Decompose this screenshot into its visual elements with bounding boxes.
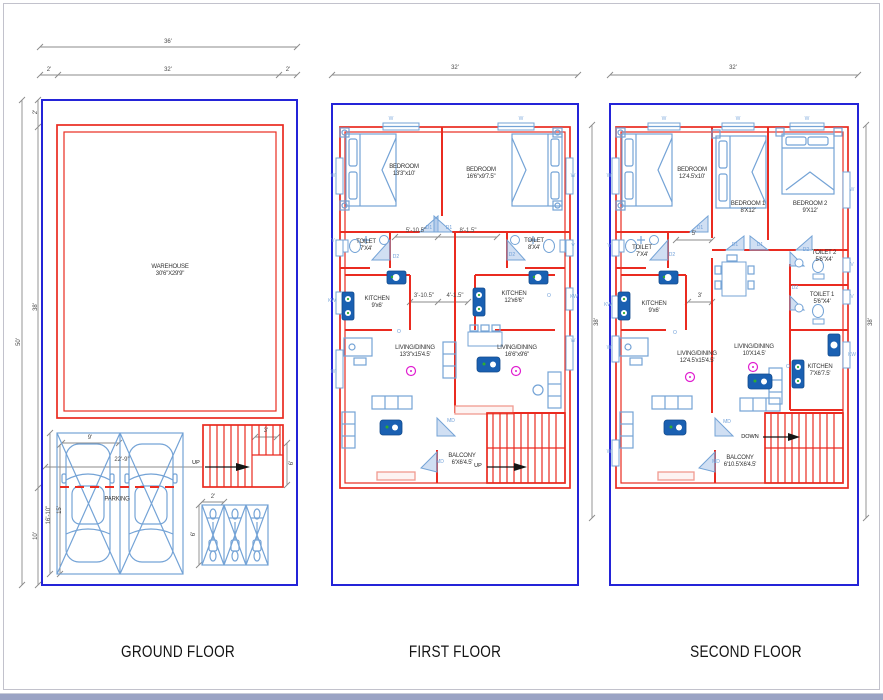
window-label: W xyxy=(805,116,810,122)
room-label-living: LIVING/DINING 12'4.5'x15'4.5' xyxy=(677,351,717,365)
ground-staircase xyxy=(203,425,283,487)
down-label: DOWN xyxy=(741,434,758,440)
room-size: 7'X4' xyxy=(632,252,652,259)
dim-setback: 2' xyxy=(47,67,51,73)
dim-top-setback: 2' xyxy=(33,110,39,114)
room-name: TOILET xyxy=(356,239,376,246)
room-size: 6'10.5'X6'4.5' xyxy=(724,462,756,469)
room-size: 13'3"x15'4.5' xyxy=(395,352,435,359)
room-label-living: LIVING/DINING 13'3"x15'4.5' xyxy=(395,345,435,359)
second-floor-plan xyxy=(607,72,869,585)
opening-label: O xyxy=(397,329,401,335)
ground-site-boundary xyxy=(42,100,297,585)
up-label: UP xyxy=(192,460,200,466)
room-label-toilet1: TOILET 1 5'6"X4' xyxy=(810,292,834,306)
room-name: KITCHEN xyxy=(808,364,833,371)
window-label: W xyxy=(389,116,394,122)
dim-parking-length2: 15' xyxy=(57,506,63,514)
floorplan-drawing: 36' 2' 32' 2' 50' 2' 38' 10' WAREHOUSE 3… xyxy=(0,0,883,700)
room-label-kitchen: KITCHEN 9'x6' xyxy=(365,296,390,310)
room-name: BEDROOM xyxy=(466,167,496,174)
room-name: BEDROOM 1 xyxy=(731,201,765,208)
door-label-d1: D1 xyxy=(697,225,703,231)
door-label-d2: D2 xyxy=(669,252,675,258)
room-name: TOILET xyxy=(632,245,652,252)
room-size: 8'X4' xyxy=(524,245,544,252)
room-name: KITCHEN xyxy=(502,291,527,298)
door-label-d2: D2 xyxy=(393,254,399,260)
first-staircase xyxy=(455,406,565,483)
up-label: UP xyxy=(474,463,482,469)
dim-stair-width: 3' xyxy=(264,428,268,434)
room-size: 16'6"x9'6" xyxy=(497,352,537,359)
dim-depth: 38' xyxy=(594,318,600,326)
room-size: 12'4.5'x15'4.5' xyxy=(677,358,717,365)
room-name: TOILET 1 xyxy=(810,292,834,299)
room-label-toilet: TOILET 8'X4' xyxy=(524,238,544,252)
room-name: BEDROOM xyxy=(677,167,707,174)
door-label-d1: D1 xyxy=(757,242,763,248)
window-label: W xyxy=(519,116,524,122)
room-label-bedroom1: BEDROOM 1 8'X12' xyxy=(731,201,765,215)
room-name: TOILET 2 xyxy=(812,250,836,257)
bottom-edge-bar xyxy=(0,693,883,700)
dim-stair-length: 6' xyxy=(289,461,295,465)
room-size: 13'3"x10' xyxy=(389,171,419,178)
room-size: 5'6"X4' xyxy=(810,299,834,306)
room-size: 9'X12' xyxy=(793,208,827,215)
dim-parking-length: 16'-10" xyxy=(46,506,52,525)
dim-parking-width: 22'-9" xyxy=(114,457,129,463)
window-label: W xyxy=(571,338,576,344)
room-name: LIVING/DINING xyxy=(734,344,774,351)
dim-width: 32' xyxy=(451,65,459,71)
window-label: V xyxy=(850,262,853,268)
bed-horizontal xyxy=(776,128,842,194)
room-size: 12'4.5'x10' xyxy=(677,174,707,181)
room-name: LIVING/DINING xyxy=(395,345,435,352)
room-label-parking: PARKING xyxy=(104,497,129,504)
window-label: KW xyxy=(570,294,578,300)
parking-area xyxy=(57,433,183,574)
door-label-md: MD xyxy=(712,459,720,465)
opening-label: O xyxy=(547,293,551,299)
bike-icon xyxy=(229,509,241,561)
bike-parking xyxy=(202,505,268,565)
room-name: LIVING/DINING xyxy=(497,345,537,352)
room-size: 7'X4' xyxy=(356,246,376,253)
up-arrow xyxy=(205,463,250,471)
window-label: W xyxy=(736,116,741,122)
dim-stall: 9' xyxy=(88,435,92,441)
room-label-toilet2: TOILET 2 5'6"X4' xyxy=(812,250,836,264)
room-name: KITCHEN xyxy=(365,296,390,303)
first-floor-plan xyxy=(329,72,595,585)
room-label-bedroom: BEDROOM 16'6"x9'7.5" xyxy=(466,167,496,181)
window-label: W xyxy=(571,173,576,179)
window-label: W xyxy=(331,369,336,375)
window-label: KW xyxy=(604,302,612,308)
room-size: 5'6"X4' xyxy=(812,257,836,264)
dim-bike-width: 2' xyxy=(211,494,215,500)
door-label-d1: D1 xyxy=(426,225,432,231)
room-name: BALCONY xyxy=(724,455,756,462)
dim-setback: 2' xyxy=(286,67,290,73)
double-bed xyxy=(512,134,562,206)
dim-inner-width: 32' xyxy=(164,67,172,73)
door-label-d1: D1 xyxy=(732,242,738,248)
window-label: W xyxy=(607,173,612,179)
opening-label: O xyxy=(786,364,790,370)
room-size: 9'x6' xyxy=(642,308,667,315)
double-bed xyxy=(622,134,672,206)
room-name: BEDROOM xyxy=(389,164,419,171)
room-name: BEDROOM 2 xyxy=(793,201,827,208)
ceiling-fan-icon xyxy=(686,363,758,382)
room-size: 7'X6'7.5' xyxy=(808,371,833,378)
door-label-md: MD xyxy=(723,419,731,425)
room-size: 9'x6' xyxy=(365,303,390,310)
room-name: KITCHEN xyxy=(642,301,667,308)
dim-c: 3'-10.5" xyxy=(414,293,434,299)
door-label-d2: D2 xyxy=(803,247,809,253)
room-size: 12'x6'6" xyxy=(502,298,527,305)
door-label-md: MD xyxy=(436,459,444,465)
room-label-living: LIVING/DINING 10'X14.5' xyxy=(734,344,774,358)
room-label-warehouse: WAREHOUSE 30'6"X29'9" xyxy=(151,264,188,278)
room-label-living: LIVING/DINING 16'6"x9'6" xyxy=(497,345,537,359)
room-name: BALCONY xyxy=(448,453,475,460)
window-label: W xyxy=(850,187,855,193)
room-label-kitchen: KITCHEN 9'x6' xyxy=(642,301,667,315)
room-label-balcony: BALCONY 6'10.5'X6'4.5' xyxy=(724,455,756,469)
room-size: 10'X14.5' xyxy=(734,351,774,358)
dim-a: 5'-10.5" xyxy=(406,228,426,234)
room-label-kitchen: KITCHEN 12'x6'6" xyxy=(502,291,527,305)
ceiling-fan-icon xyxy=(407,367,521,376)
room-label-balcony: BALCONY 6'X6'4.5' xyxy=(448,453,475,467)
room-label-kitchen: KITCHEN 7'X6'7.5' xyxy=(808,364,833,378)
room-name: LIVING/DINING xyxy=(677,351,717,358)
dim-d: 4'-1.5" xyxy=(447,293,464,299)
dim-bike-length: 6' xyxy=(191,532,197,536)
window-label: V xyxy=(331,238,334,244)
room-label-bedroom: BEDROOM 12'4.5'x10' xyxy=(677,167,707,181)
dim-a: 5' xyxy=(692,231,696,237)
first-floor-title: FIRST FLOOR xyxy=(409,642,501,662)
second-staircase xyxy=(765,413,843,483)
room-size: 30'6"X29'9" xyxy=(151,271,188,278)
room-label-bedroom2: BEDROOM 2 9'X12' xyxy=(793,201,827,215)
room-label-toilet: TOILET 7'X4' xyxy=(632,245,652,259)
window-label: W xyxy=(662,116,667,122)
single-bed xyxy=(716,136,766,208)
down-arrow xyxy=(763,433,800,441)
window-label: V xyxy=(850,294,853,300)
dim-total-width: 36' xyxy=(164,39,172,45)
window-label: V xyxy=(607,243,610,249)
dim-depth: 38' xyxy=(33,303,39,311)
second-floor-title: SECOND FLOOR xyxy=(690,642,802,662)
dim-b: 3' xyxy=(698,293,702,299)
bike-icon xyxy=(251,509,263,561)
bike-icon xyxy=(207,509,219,561)
room-size: 6'X6'4.5' xyxy=(448,460,475,467)
door-label-d1: D1 xyxy=(446,225,452,231)
window-label: W xyxy=(607,345,612,351)
room-label-toilet: TOILET 7'X4' xyxy=(356,239,376,253)
opening-label: O xyxy=(673,330,677,336)
room-name: TOILET xyxy=(524,238,544,245)
dim-width: 32' xyxy=(729,65,737,71)
window-label: W xyxy=(607,449,612,455)
door-label-d2: D2 xyxy=(509,252,515,258)
room-size: 8'X12' xyxy=(731,208,765,215)
dim-b: 8'-1.5" xyxy=(460,228,477,234)
dim-total-height: 50' xyxy=(16,338,22,346)
window-label: KW xyxy=(328,298,336,304)
dim-depth: 38' xyxy=(868,318,874,326)
door-label-d2: D2 xyxy=(792,285,798,291)
room-name: WAREHOUSE xyxy=(151,264,188,271)
door-label-md: MD xyxy=(447,418,455,424)
window-label: KW xyxy=(848,352,856,358)
window-label: W xyxy=(331,173,336,179)
dim-bottom: 10' xyxy=(33,532,39,540)
ground-floor-title: GROUND FLOOR xyxy=(121,642,235,662)
room-label-bedroom: BEDROOM 13'3"x10' xyxy=(389,164,419,178)
window-label: V xyxy=(571,243,574,249)
room-name: PARKING xyxy=(104,497,129,504)
room-size: 16'6"x9'7.5" xyxy=(466,174,496,181)
